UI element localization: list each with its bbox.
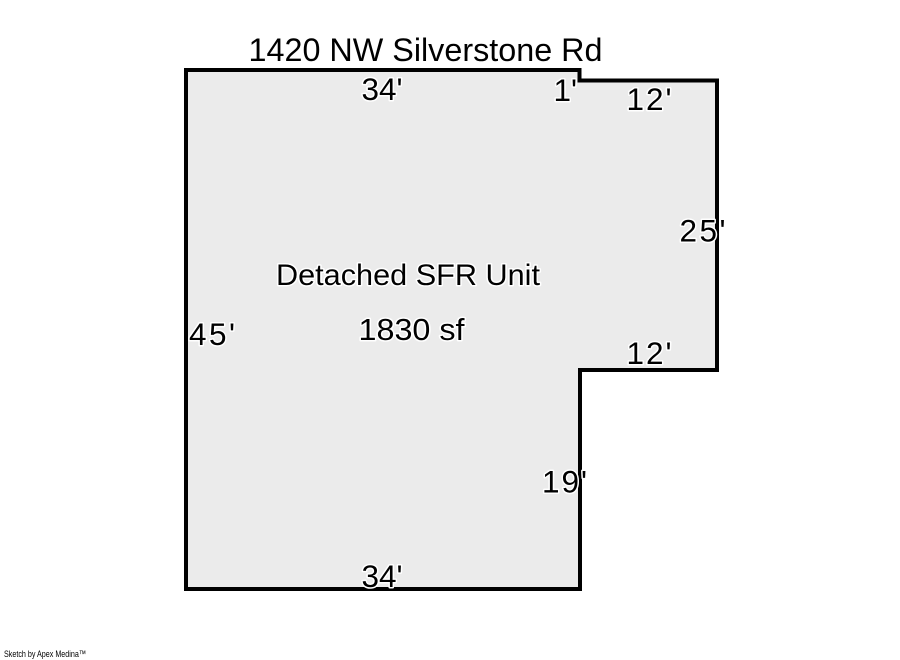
- svg-text:34': 34': [361, 558, 402, 594]
- svg-text:12': 12': [626, 335, 673, 371]
- svg-text:45': 45': [189, 316, 238, 352]
- svg-text:Sketch by Apex Medina™: Sketch by Apex Medina™: [4, 649, 86, 660]
- svg-text:1420 NW Silverstone Rd: 1420 NW Silverstone Rd: [249, 32, 603, 68]
- svg-text:12': 12': [626, 81, 673, 117]
- svg-text:1': 1': [553, 72, 577, 108]
- svg-text:25': 25': [679, 213, 728, 249]
- svg-text:Detached SFR Unit: Detached SFR Unit: [276, 259, 541, 292]
- svg-text:19': 19': [542, 464, 589, 500]
- svg-text:34': 34': [361, 71, 402, 107]
- svg-text:1830 sf: 1830 sf: [359, 313, 466, 347]
